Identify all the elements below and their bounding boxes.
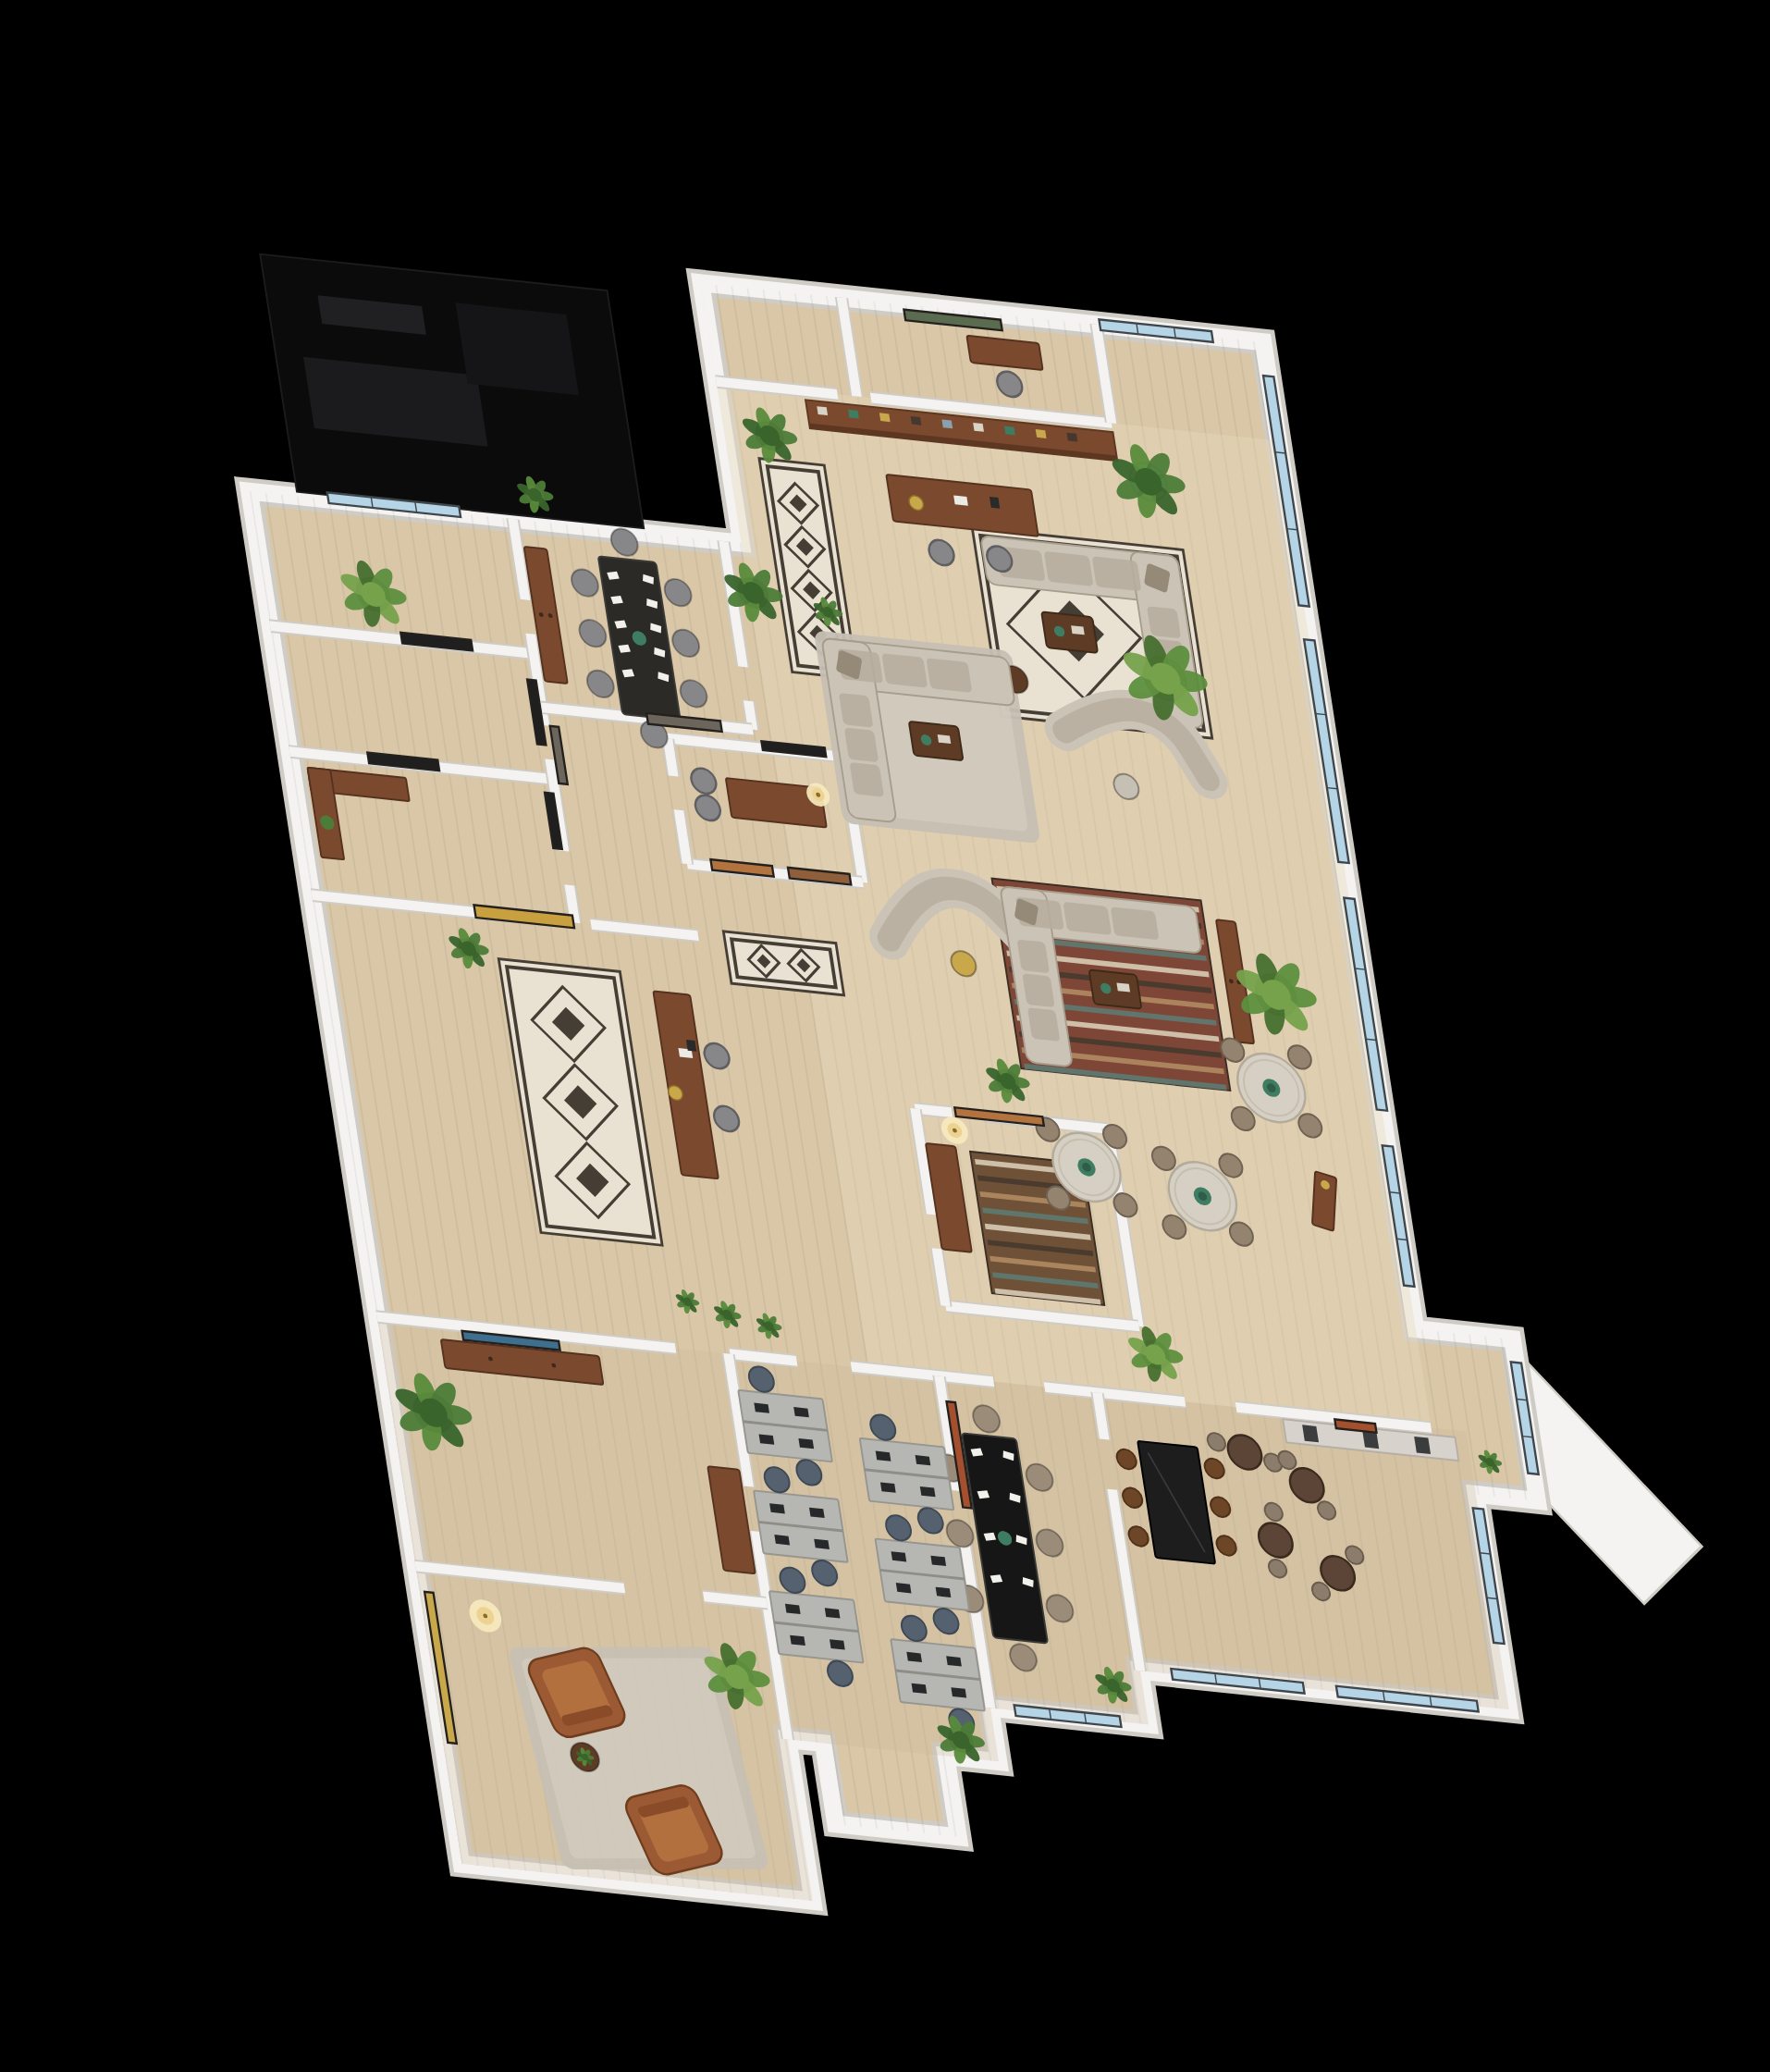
interior-wall bbox=[704, 1597, 767, 1603]
coffee-table bbox=[1089, 969, 1142, 1008]
floor-plan-svg bbox=[37, 15, 1770, 2072]
coffee-table bbox=[909, 721, 964, 760]
host-stand bbox=[1312, 1171, 1336, 1231]
floor-plan-render bbox=[37, 15, 1770, 2072]
hall-rug bbox=[723, 931, 843, 995]
interior-wall bbox=[668, 738, 673, 776]
coffee-table bbox=[1041, 611, 1098, 653]
rooftop-mechanical-slab bbox=[260, 254, 644, 529]
